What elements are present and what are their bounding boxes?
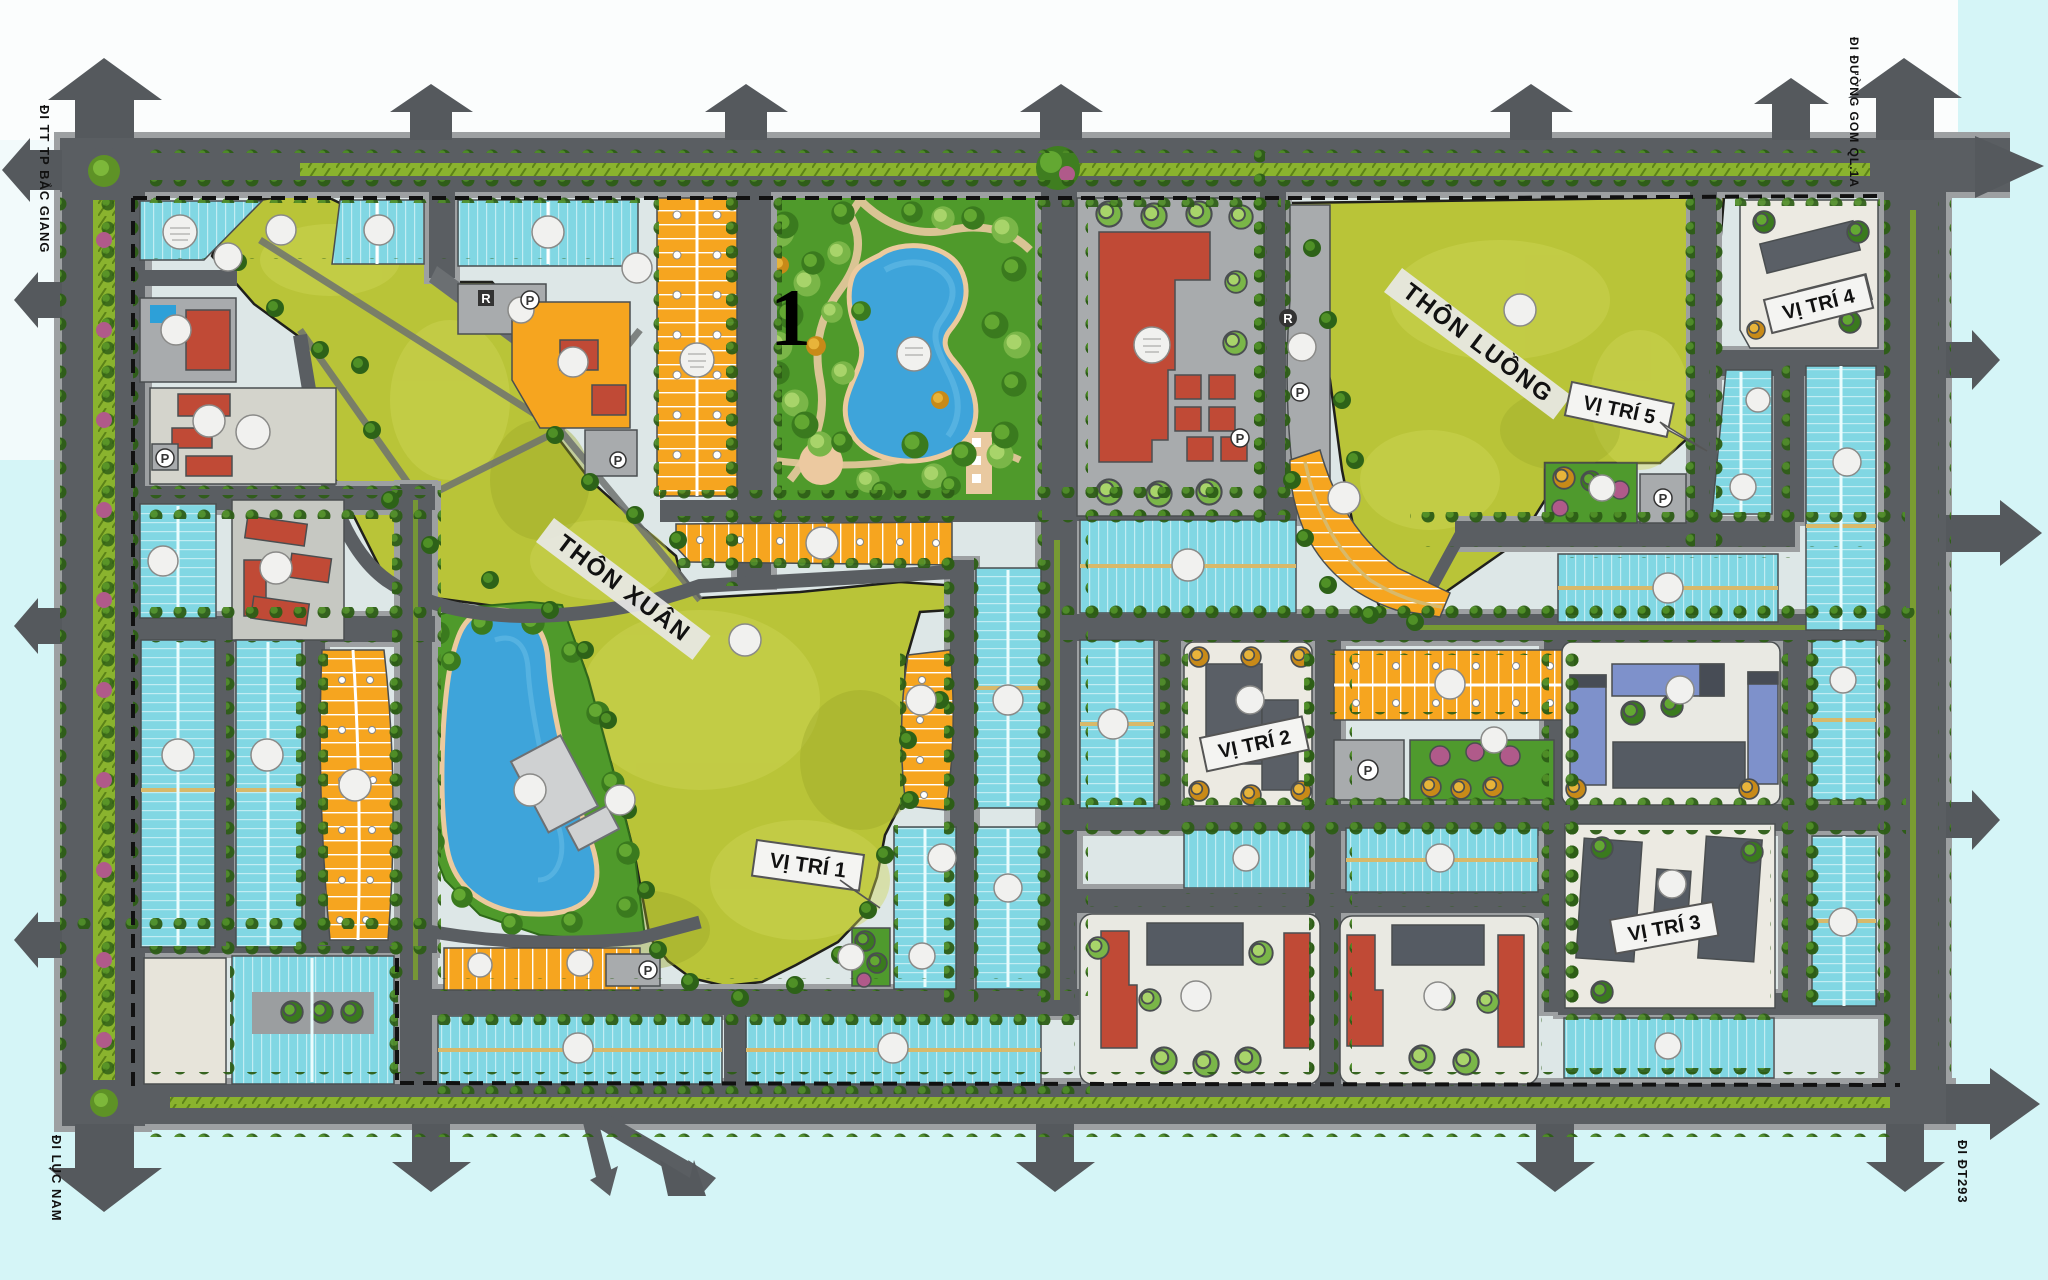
svg-text:P: P <box>1659 491 1668 506</box>
svg-text:P: P <box>1364 763 1373 778</box>
svg-text:P: P <box>1296 385 1305 400</box>
svg-text:ĐI ĐƯỜNG GOM QL.1A: ĐI ĐƯỜNG GOM QL.1A <box>1847 37 1862 188</box>
svg-text:1: 1 <box>770 272 811 363</box>
svg-text:P: P <box>526 293 535 308</box>
svg-text:R: R <box>481 291 491 306</box>
svg-text:P: P <box>614 453 623 468</box>
svg-text:ĐI ĐT293: ĐI ĐT293 <box>1955 1140 1970 1204</box>
svg-text:ĐI LỤC NAM: ĐI LỤC NAM <box>49 1135 64 1222</box>
svg-text:P: P <box>1236 431 1245 446</box>
svg-text:R: R <box>1283 311 1293 326</box>
svg-text:P: P <box>644 963 653 978</box>
svg-text:P: P <box>161 451 170 466</box>
svg-text:ĐI TT TP BẮC GIANG: ĐI TT TP BẮC GIANG <box>37 105 52 253</box>
